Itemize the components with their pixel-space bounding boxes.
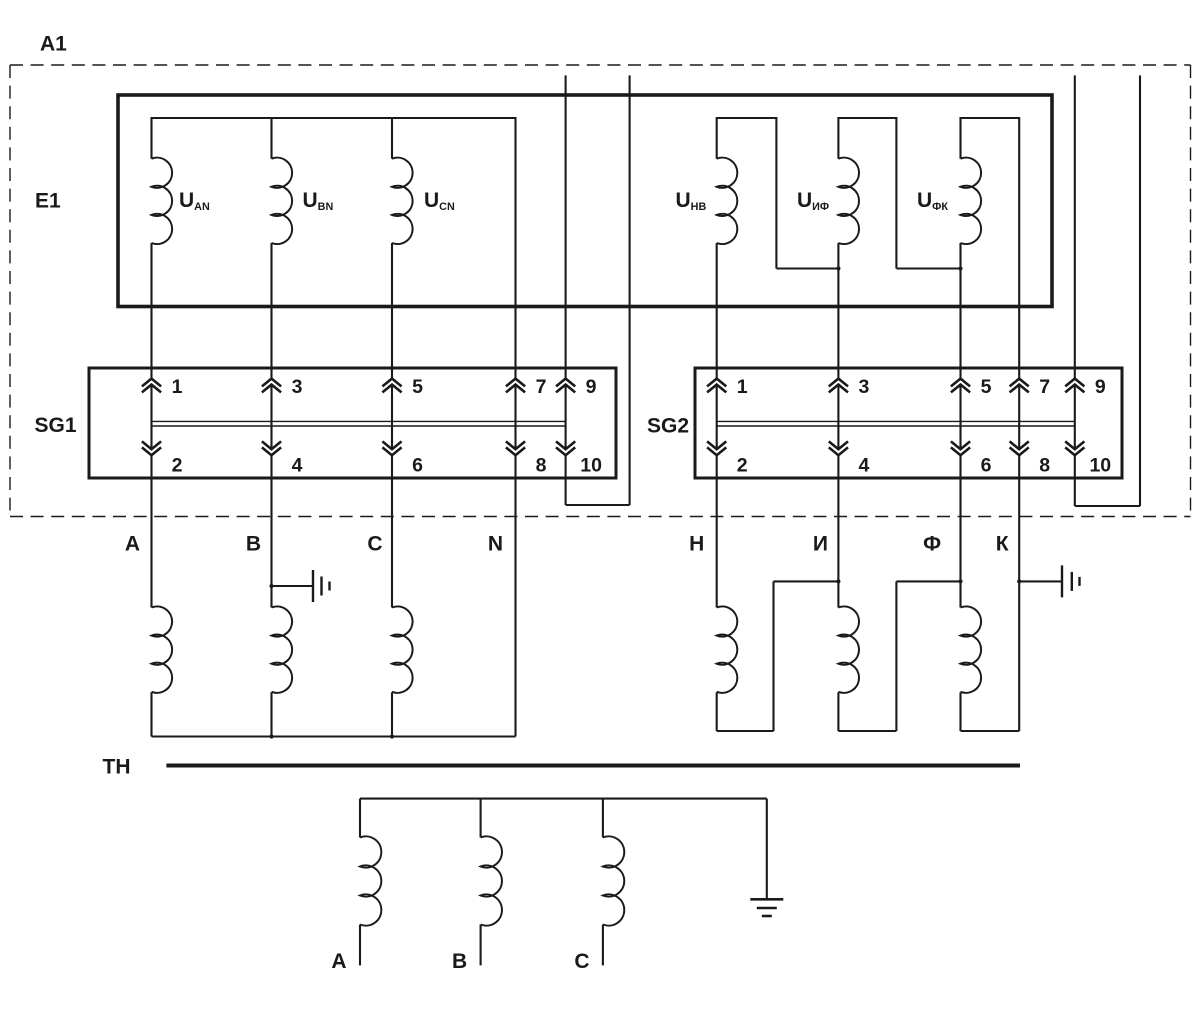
svg-text:7: 7: [536, 376, 547, 398]
svg-text:6: 6: [412, 454, 423, 476]
svg-text:9: 9: [1095, 376, 1106, 398]
svg-text:SG1: SG1: [35, 414, 77, 437]
svg-text:Ф: Ф: [923, 533, 941, 556]
svg-text:9: 9: [586, 376, 597, 398]
svg-text:Н: Н: [689, 533, 704, 556]
svg-text:ТН: ТН: [103, 756, 131, 779]
svg-text:2: 2: [737, 454, 748, 476]
svg-text:И: И: [813, 533, 828, 556]
svg-text:N: N: [488, 533, 503, 556]
svg-text:10: 10: [1089, 454, 1111, 476]
svg-text:5: 5: [412, 376, 423, 398]
svg-text:4: 4: [292, 454, 303, 476]
svg-text:3: 3: [292, 376, 303, 398]
svg-text:1: 1: [172, 376, 183, 398]
svg-text:8: 8: [1039, 454, 1050, 476]
svg-text:A1: A1: [40, 32, 67, 55]
svg-text:C: C: [574, 950, 589, 973]
svg-text:10: 10: [580, 454, 602, 476]
svg-text:3: 3: [858, 376, 869, 398]
svg-text:A: A: [331, 950, 346, 973]
svg-text:4: 4: [858, 454, 869, 476]
svg-text:E1: E1: [35, 189, 61, 212]
svg-text:6: 6: [981, 454, 992, 476]
svg-text:B: B: [452, 950, 467, 973]
svg-text:5: 5: [981, 376, 992, 398]
svg-text:7: 7: [1039, 376, 1050, 398]
svg-text:A: A: [125, 533, 140, 556]
svg-text:1: 1: [737, 376, 748, 398]
svg-text:К: К: [996, 533, 1009, 556]
svg-text:SG2: SG2: [647, 414, 689, 437]
svg-text:C: C: [367, 533, 382, 556]
svg-text:2: 2: [172, 454, 183, 476]
svg-text:B: B: [246, 533, 261, 556]
svg-text:8: 8: [536, 454, 547, 476]
